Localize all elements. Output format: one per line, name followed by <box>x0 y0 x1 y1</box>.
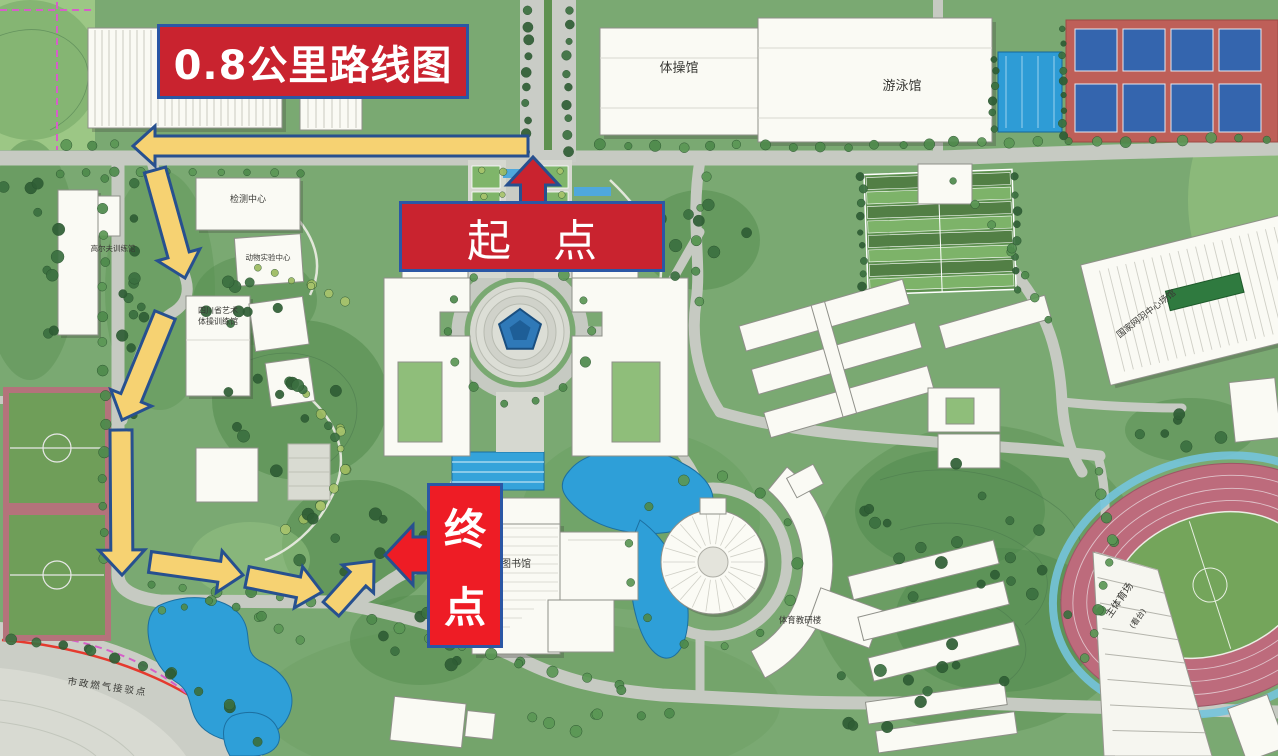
label-pe-faculty: 体育教研楼 <box>779 615 822 626</box>
label-art-gym-line1: 四川省艺术 <box>198 305 238 315</box>
label-swimming-hall: 游泳馆 <box>882 79 921 94</box>
route-title-banner: 0.8公里路线图 <box>157 24 469 99</box>
campus-map-canvas: 体操馆 游泳馆 检测中心 动物实验中心 四川省艺术 体操训练馆 高尔夫训练馆 图… <box>0 0 1278 756</box>
end-point-char-bottom: 点 <box>444 574 486 635</box>
label-animal-lab: 动物实验中心 <box>246 252 291 262</box>
label-gymnastics-hall: 体操馆 <box>659 60 698 76</box>
start-point-box: 起 点 <box>399 201 665 272</box>
end-point-char-top: 终 <box>444 496 486 557</box>
building-gymnastics-hall <box>600 28 758 135</box>
soccer-fields <box>6 390 108 638</box>
label-art-gym-line2: 体操训练馆 <box>198 316 238 326</box>
end-point-box: 终 点 <box>427 483 503 648</box>
campus-map: 体操馆 游泳馆 检测中心 动物实验中心 四川省艺术 体操训练馆 高尔夫训练馆 图… <box>0 0 1278 756</box>
building-swimming-hall <box>758 18 992 142</box>
label-library: 图书馆 <box>501 557 531 570</box>
label-golf-training: 高尔夫训练馆 <box>91 243 136 253</box>
label-testing-center: 检测中心 <box>230 193 266 205</box>
outdoor-pool <box>998 52 1062 132</box>
building-golf-training <box>58 190 98 335</box>
